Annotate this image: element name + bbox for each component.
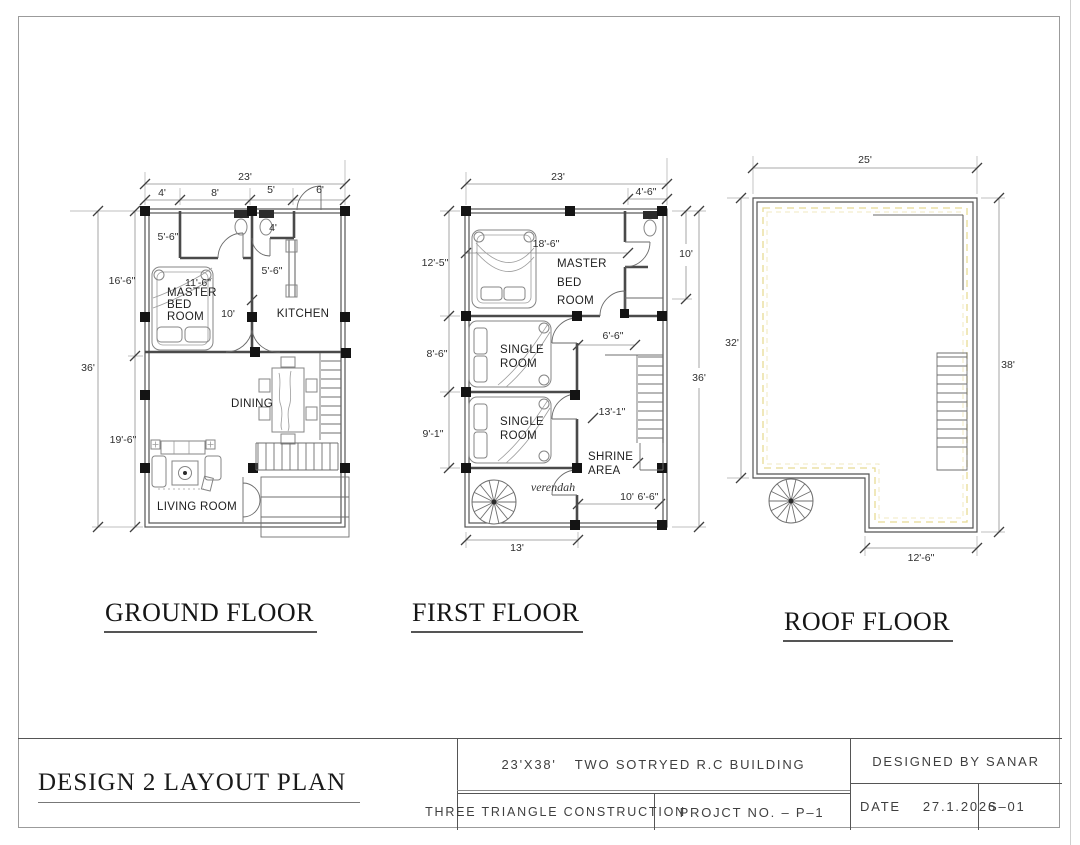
ground-dim-upper-height: 16'-6" xyxy=(109,275,136,287)
ground-dim-hall: 10' xyxy=(221,308,235,320)
floor-plan-drawing: 23' 4' 8' 5' 6' 36' 16'-6" 19'-6" 5'-6" … xyxy=(0,0,1080,845)
first-room-shrine-1: SHRINE xyxy=(588,451,633,463)
first-floor-title: FIRST FLOOR xyxy=(411,598,583,633)
drawing-title: DESIGN 2 LAYOUT PLAN xyxy=(38,769,360,803)
sheet-number-cell: S–01 xyxy=(978,783,1062,830)
title-block: DESIGN 2 LAYOUT PLAN 23'X38' TWO SOTRYED… xyxy=(18,738,1062,829)
ground-dimension-lines xyxy=(70,160,350,532)
ground-dim-kitchen: 5'-6" xyxy=(262,265,283,277)
roof-parapet-inner-dashed-line xyxy=(767,212,963,518)
paper-edge xyxy=(1070,0,1071,845)
ground-dim-seg-d: 6' xyxy=(316,184,324,196)
ground-kitchen-counter xyxy=(286,240,297,297)
ground-dim-lower-height: 19'-6" xyxy=(110,434,137,446)
first-room-single2-2: ROOM xyxy=(500,430,537,442)
first-room-single2-1: SINGLE xyxy=(500,416,544,428)
building-description-cell: 23'X38' TWO SOTRYED R.C BUILDING xyxy=(457,739,850,790)
first-dim-stair-length: 13'-1" xyxy=(599,406,626,418)
ground-inner-wall xyxy=(149,213,341,523)
ground-dim-seg-a: 4' xyxy=(158,187,166,199)
ground-dim-seg-c: 5' xyxy=(267,184,275,196)
ground-room-dining: DINING xyxy=(231,398,273,410)
company-cell: THREE TRIANGLE CONSTRUCTION xyxy=(457,794,654,830)
ground-dim-bath-right: 4' xyxy=(269,222,277,234)
roof-spiral-stair xyxy=(769,479,813,523)
roof-dim-right: 38' xyxy=(1001,359,1015,371)
first-floor-plan: 23' 4'-6" 12'-5" 8'-6" 9'-1" 10' 36' 18'… xyxy=(422,158,706,554)
roof-dim-bottom: 12'-6" xyxy=(908,552,935,564)
designed-by-cell: DESIGNED BY SANAR xyxy=(850,739,1062,783)
ground-dim-total-width: 23' xyxy=(238,171,252,183)
ground-room-master-3: ROOM xyxy=(167,311,204,323)
first-dim-left-a: 12'-5" xyxy=(422,257,449,269)
first-room-master-1: MASTER xyxy=(557,258,607,270)
first-room-verandah: verendah xyxy=(531,480,575,494)
first-room-single1-1: SINGLE xyxy=(500,344,544,356)
ground-columns xyxy=(140,206,351,473)
first-dim-inner-a: 10' xyxy=(620,491,634,503)
first-room-master-3: ROOM xyxy=(557,295,594,307)
roof-parapet-dashed-line xyxy=(763,208,967,522)
ground-room-master-2: BED xyxy=(167,299,192,311)
first-spiral-stair xyxy=(472,480,516,524)
first-room-single1-2: ROOM xyxy=(500,358,537,370)
first-dim-inner-b: 6'-6" xyxy=(638,491,659,503)
ground-dim-seg-b: 8' xyxy=(211,187,219,199)
building-description: TWO SOTRYED R.C BUILDING xyxy=(575,757,806,772)
ground-room-kitchen: KITCHEN xyxy=(277,308,330,320)
first-dim-master-width: 18'-6" xyxy=(533,238,560,250)
designed-by: DESIGNED BY SANAR xyxy=(872,754,1040,769)
ground-floor-title: GROUND FLOOR xyxy=(104,598,317,633)
project-number: PROJCT NO. – P–1 xyxy=(680,805,825,820)
ground-room-living: LIVING ROOM xyxy=(157,501,237,513)
first-dim-total-height: 36' xyxy=(692,372,706,384)
building-size: 23'X38' xyxy=(502,757,557,772)
first-dim-stair-width: 6'-6" xyxy=(603,330,624,342)
roof-floor-plan: 25' 32' 38' 12'-6" xyxy=(725,154,1015,564)
first-dim-bath-width: 4'-6" xyxy=(636,186,657,198)
first-dim-total-width: 23' xyxy=(551,171,565,183)
sheet-number: S–01 xyxy=(988,799,1026,814)
first-room-shrine-2: AREA xyxy=(588,465,621,477)
drawing-sheet: 23' 4' 8' 5' 6' 36' 16'-6" 19'-6" 5'-6" … xyxy=(0,0,1080,845)
first-dim-right-a: 10' xyxy=(679,248,693,260)
first-dim-left-c: 9'-1" xyxy=(423,428,444,440)
first-room-master-2: BED xyxy=(557,277,582,289)
ground-dim-bath-left: 5'-6" xyxy=(158,231,179,243)
date-cell: DATE 27.1.2026 xyxy=(850,783,978,830)
roof-stairwell-outline xyxy=(873,215,963,290)
ground-floor-plan: 23' 4' 8' 5' 6' 36' 16'-6" 19'-6" 5'-6" … xyxy=(70,160,351,537)
project-number-cell: PROJCT NO. – P–1 xyxy=(654,794,850,830)
roof-dim-top: 25' xyxy=(858,154,872,166)
titleblock-divider xyxy=(457,790,850,791)
first-toilet xyxy=(643,211,658,236)
roof-dim-left: 32' xyxy=(725,337,739,349)
ground-room-master-1: MASTER xyxy=(167,287,217,299)
first-dim-bottom-width: 13' xyxy=(510,542,524,554)
first-dim-left-b: 8'-6" xyxy=(427,348,448,360)
roof-floor-title: ROOF FLOOR xyxy=(783,607,953,642)
ground-dim-total-height: 36' xyxy=(81,362,95,374)
company-name: THREE TRIANGLE CONSTRUCTION xyxy=(425,805,686,819)
ground-doors xyxy=(218,186,321,522)
date-label: DATE xyxy=(860,799,901,814)
